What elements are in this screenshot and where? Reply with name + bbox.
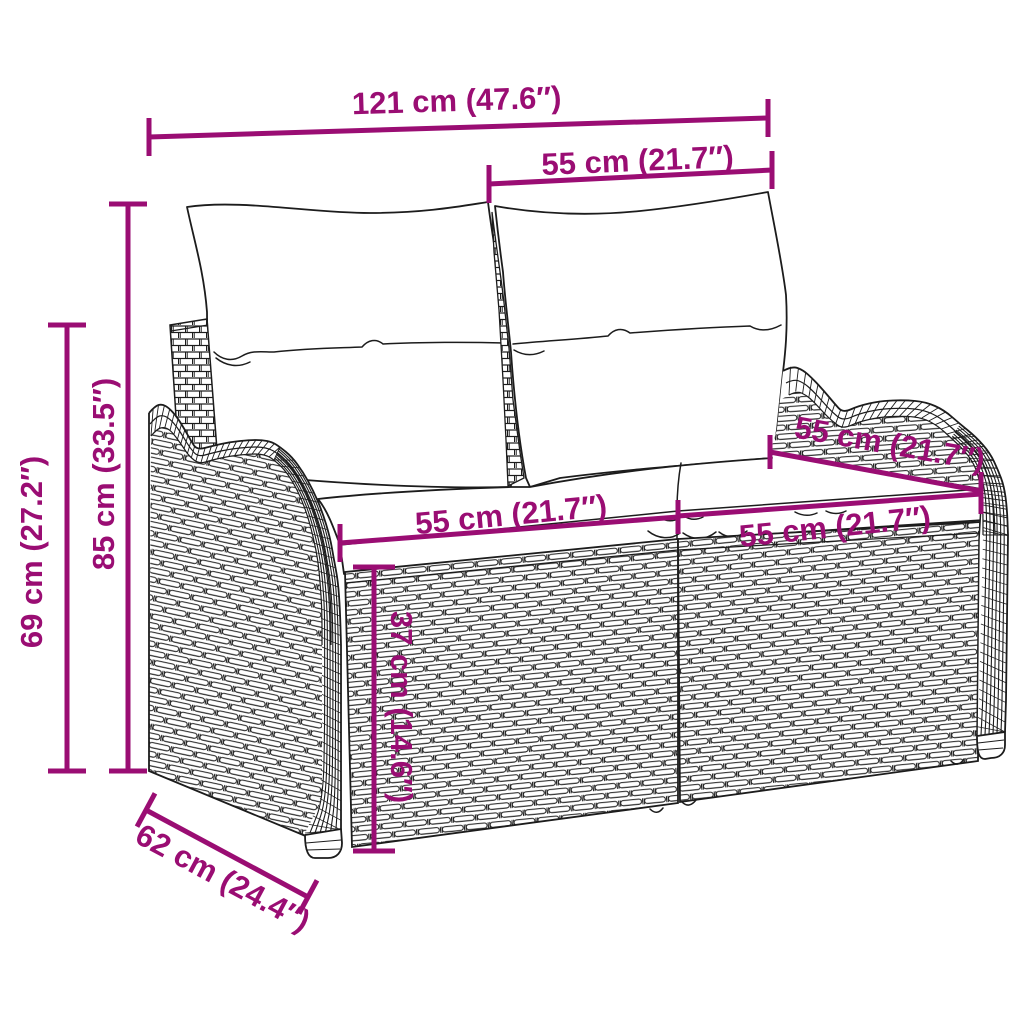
svg-text:37 cm (14.6″): 37 cm (14.6″) — [384, 611, 419, 803]
svg-text:121 cm (47.6″): 121 cm (47.6″) — [351, 80, 562, 122]
svg-text:69 cm (27.2″): 69 cm (27.2″) — [14, 456, 49, 648]
svg-text:85 cm (33.5″): 85 cm (33.5″) — [86, 378, 121, 570]
